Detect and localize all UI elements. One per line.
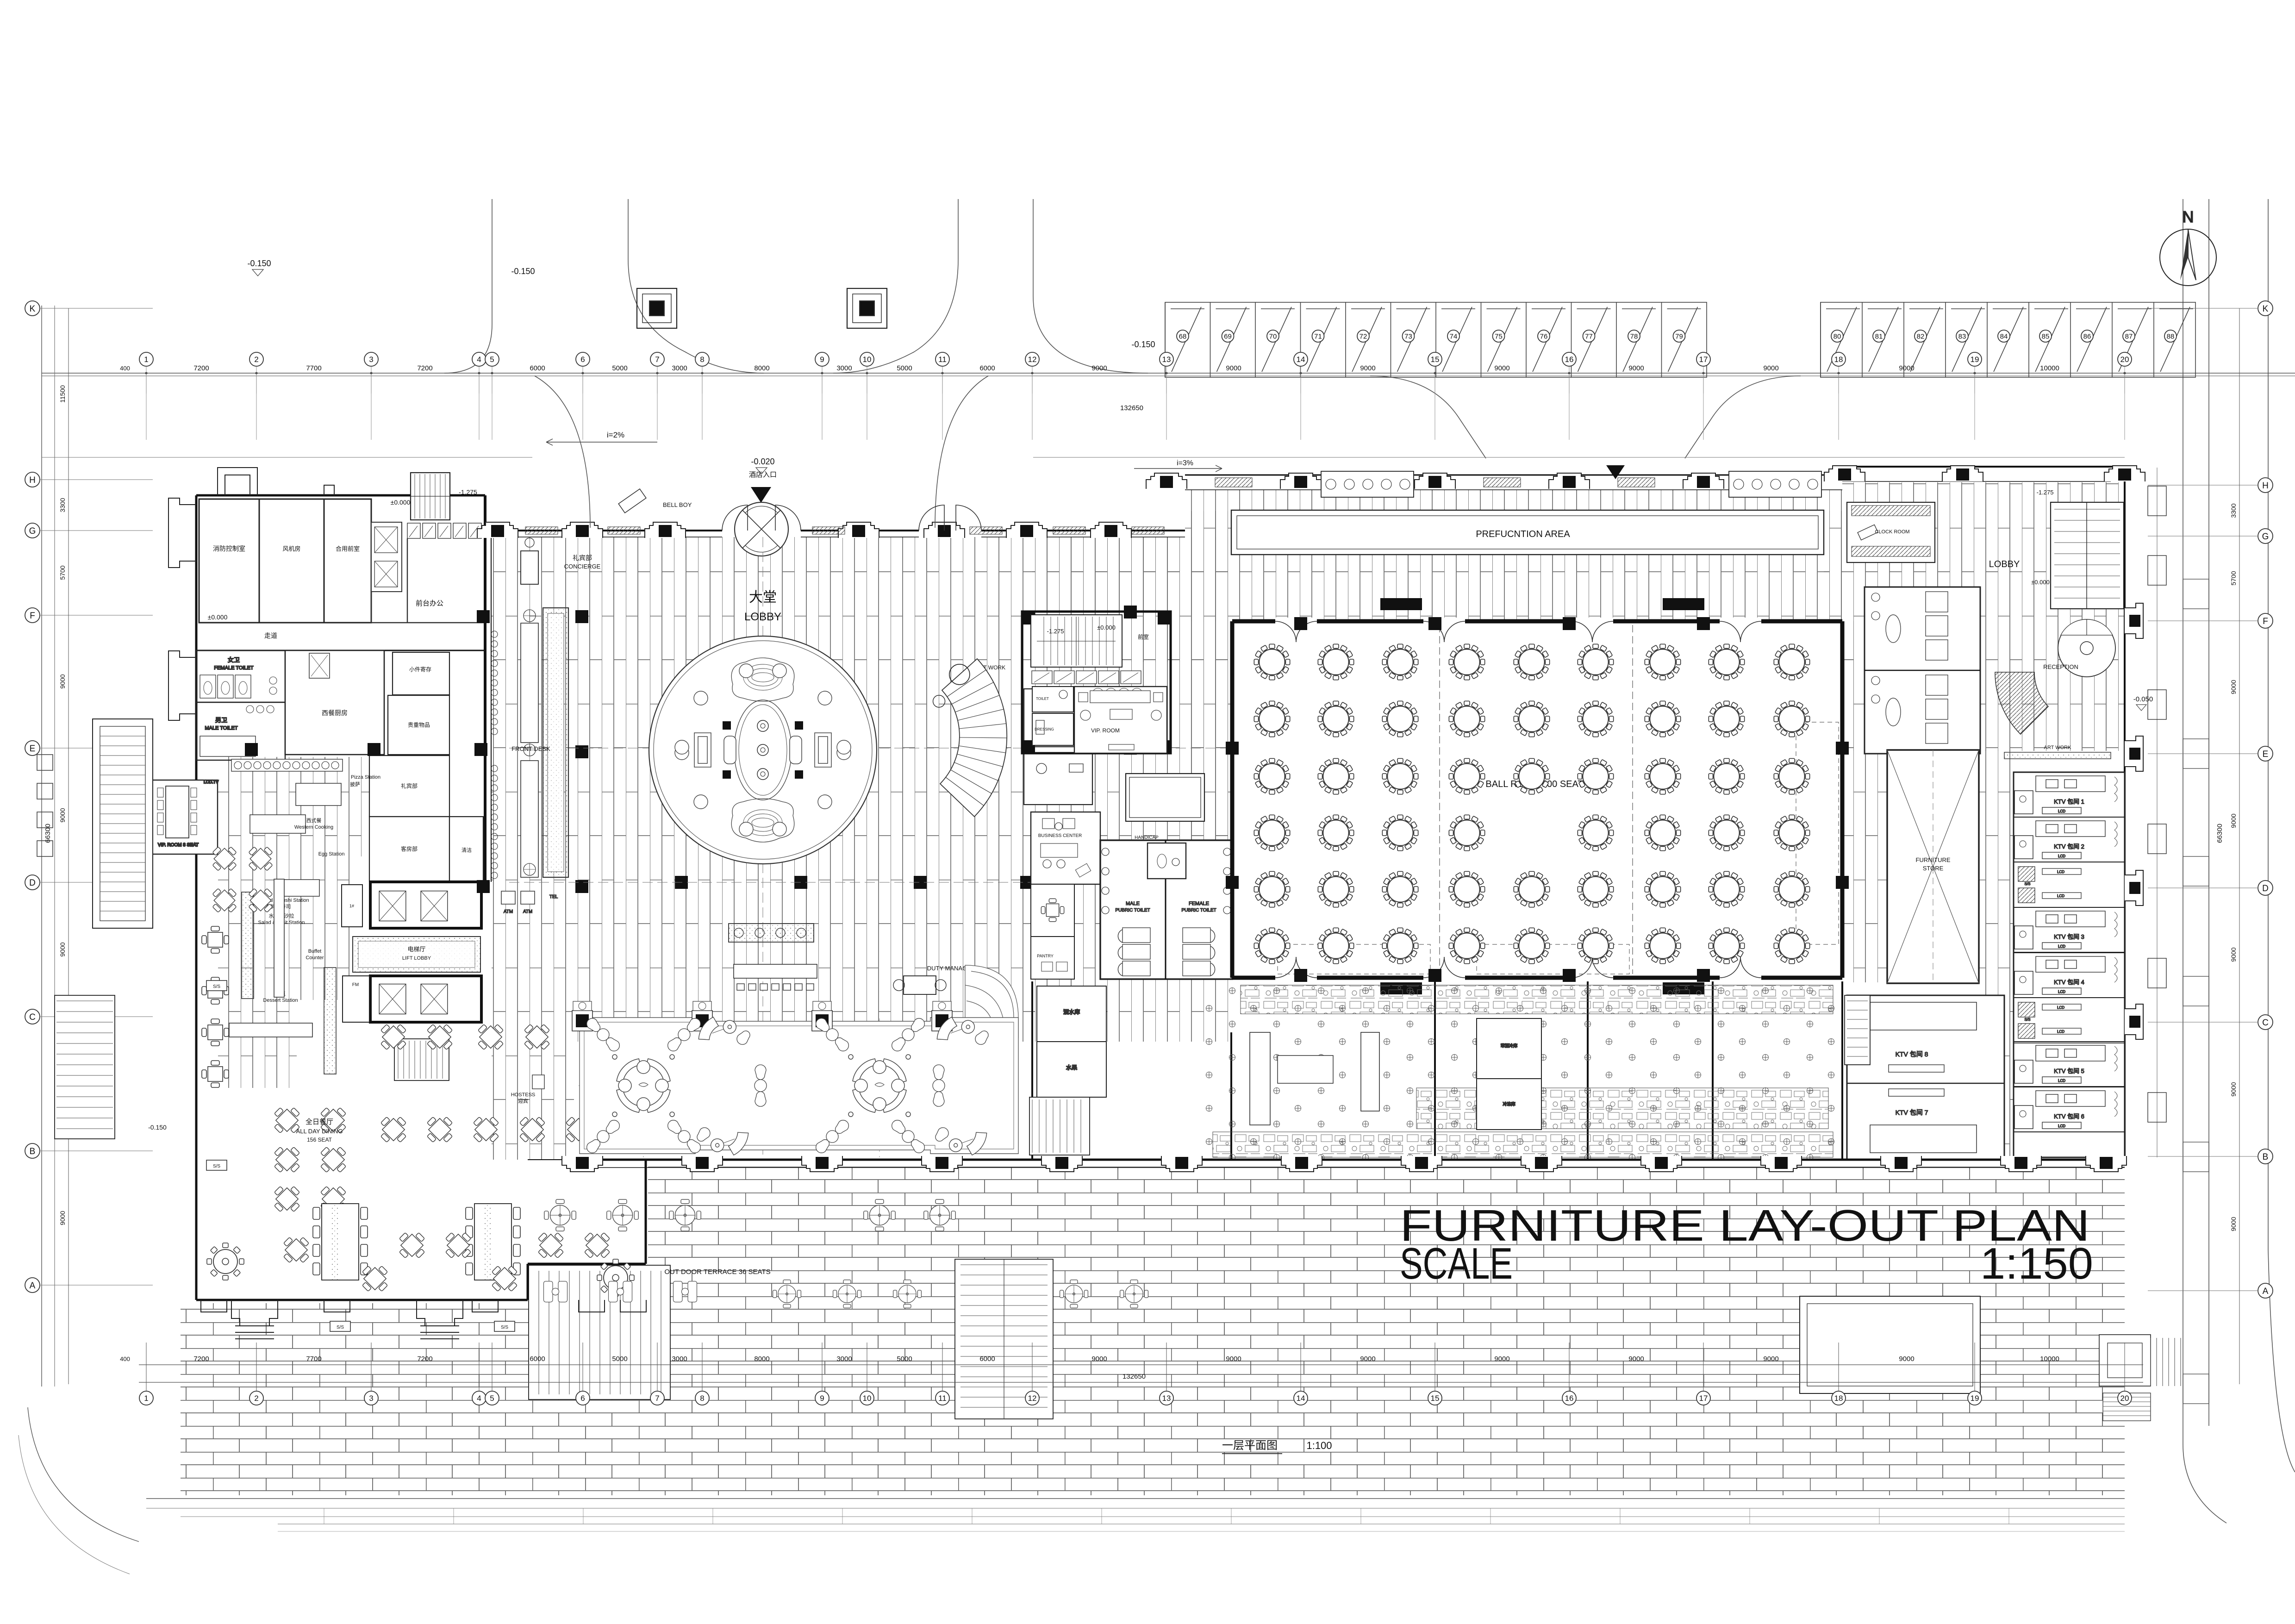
svg-text:74: 74 [1450,332,1458,340]
svg-text:N: N [2183,208,2194,226]
svg-text:7200: 7200 [193,1355,209,1363]
svg-text:2: 2 [254,355,258,364]
svg-text:SCALE: SCALE [1400,1239,1513,1288]
svg-text:6: 6 [580,355,585,364]
svg-text:4: 4 [477,355,481,364]
svg-text:9000: 9000 [2230,680,2237,694]
svg-text:9000: 9000 [2230,1217,2237,1231]
svg-text:9000: 9000 [2230,947,2237,962]
svg-text:LIFT LOBBY: LIFT LOBBY [402,956,431,961]
svg-text:3: 3 [369,355,373,364]
svg-text:5: 5 [490,1394,494,1403]
svg-text:80: 80 [1834,332,1841,340]
svg-text:5000: 5000 [612,364,627,372]
svg-text:S/S: S/S [213,984,220,989]
svg-text:9000: 9000 [59,808,66,822]
svg-text:客房部: 客房部 [401,845,418,852]
svg-text:一层平面图: 一层平面图 [1222,1439,1278,1452]
svg-text:A: A [30,1281,36,1291]
svg-text:7: 7 [655,355,659,364]
svg-text:HANDICAP: HANDICAP [1135,835,1159,840]
svg-text:78: 78 [1630,332,1638,340]
svg-text:5700: 5700 [59,565,66,580]
svg-text:71: 71 [1314,332,1322,340]
svg-text:8: 8 [700,355,704,364]
svg-text:OUT DOOR TERRACE 36 SEATS: OUT DOOR TERRACE 36 SEATS [664,1268,770,1276]
svg-text:LCD: LCD [2058,990,2065,994]
svg-text:3: 3 [369,1394,373,1403]
svg-text:10000: 10000 [2040,1355,2059,1363]
svg-text:TEL: TEL [549,894,558,899]
svg-text:PUBRIC TOILET: PUBRIC TOILET [1181,908,1216,913]
svg-text:C: C [2262,1018,2269,1028]
svg-text:8: 8 [700,1394,704,1403]
svg-text:11: 11 [938,1394,947,1403]
svg-text:9000: 9000 [59,1211,66,1225]
svg-text:400: 400 [120,1355,130,1362]
svg-text:PANTRY: PANTRY [1037,954,1054,958]
svg-text:S/S: S/S [2025,1018,2031,1022]
svg-text:PUBRIC TOILET: PUBRIC TOILET [1115,908,1150,913]
svg-text:Buffet: Buffet [308,949,322,954]
svg-text:9000: 9000 [1899,1355,1914,1363]
svg-text:G: G [29,526,36,536]
svg-text:5000: 5000 [612,1355,627,1363]
svg-text:72: 72 [1360,332,1367,340]
svg-text:LOBBY: LOBBY [744,611,781,623]
svg-text:7200: 7200 [193,364,209,372]
svg-text:i=3%: i=3% [1177,459,1193,467]
svg-text:3300: 3300 [59,498,66,512]
svg-text:1#: 1# [349,904,354,908]
svg-text:70: 70 [1269,332,1277,340]
svg-text:13: 13 [1162,355,1171,364]
svg-text:3000: 3000 [836,364,852,372]
svg-text:17: 17 [1699,1394,1708,1403]
svg-text:KTV 包间 7: KTV 包间 7 [1896,1109,1928,1116]
svg-text:S/S: S/S [501,1325,508,1330]
svg-text:9000: 9000 [1628,1355,1644,1363]
svg-text:9000: 9000 [59,674,66,688]
svg-text:-0.150: -0.150 [148,1124,167,1131]
svg-text:MALE TOILET: MALE TOILET [205,725,237,731]
svg-text:-0.150: -0.150 [511,267,535,276]
svg-text:14: 14 [1297,355,1305,364]
svg-text:12: 12 [1028,1394,1037,1403]
svg-text:-0.050: -0.050 [2133,695,2153,703]
svg-text:迎宾: 迎宾 [518,1098,528,1104]
svg-text:6000: 6000 [979,1355,995,1363]
svg-text:女卫: 女卫 [228,656,240,663]
svg-text:B: B [2263,1152,2269,1162]
svg-text:A: A [2263,1287,2269,1296]
svg-text:西式餐: 西式餐 [306,817,322,824]
svg-text:H: H [29,475,36,485]
svg-text:6000: 6000 [530,1355,545,1363]
svg-text:3000: 3000 [672,364,687,372]
svg-text:-1.275: -1.275 [2037,489,2054,496]
svg-text:Western Cooking: Western Cooking [294,824,333,830]
svg-text:69: 69 [1224,332,1232,340]
svg-text:KTV 包间 1: KTV 包间 1 [2054,798,2084,805]
svg-text:84: 84 [2000,332,2008,340]
svg-text:10: 10 [863,1394,872,1403]
svg-text:酒水库: 酒水库 [1063,1008,1080,1015]
svg-text:9000: 9000 [1763,1355,1778,1363]
svg-text:水果: 水果 [1066,1064,1077,1071]
svg-text:-0.150: -0.150 [247,259,271,268]
svg-text:83: 83 [1958,332,1966,340]
svg-text:PREFUCNTION AREA: PREFUCNTION AREA [1476,529,1570,539]
svg-text:风机房: 风机房 [282,545,300,552]
svg-text:85: 85 [2042,332,2050,340]
svg-text:2: 2 [254,1394,258,1403]
svg-text:HOSTESS: HOSTESS [511,1092,536,1098]
svg-text:CLOCK ROOM: CLOCK ROOM [1875,529,1909,535]
svg-text:KTV 包间 5: KTV 包间 5 [2054,1068,2084,1074]
svg-text:礼宾部: 礼宾部 [401,782,418,789]
svg-text:小件寄存: 小件寄存 [409,666,431,673]
svg-text:73: 73 [1404,332,1412,340]
svg-text:S/S: S/S [337,1325,344,1330]
svg-text:9000: 9000 [2230,813,2237,828]
svg-text:荤湿冷库: 荤湿冷库 [1501,1043,1517,1048]
svg-text:9000: 9000 [1494,1355,1509,1363]
svg-text:7: 7 [655,1394,659,1403]
svg-text:F: F [2263,617,2268,626]
svg-text:87: 87 [2125,332,2133,340]
svg-text:C: C [29,1012,36,1022]
svg-text:K: K [2263,304,2269,314]
svg-text:贵重物品: 贵重物品 [408,722,430,728]
svg-text:9000: 9000 [2230,1082,2237,1096]
svg-text:西餐厨房: 西餐厨房 [322,709,348,717]
svg-text:79: 79 [1675,332,1683,340]
svg-text:66300: 66300 [44,824,52,843]
svg-text:FM: FM [352,982,359,987]
svg-text:MALE: MALE [1126,901,1140,906]
svg-text:i=2%: i=2% [607,431,624,439]
svg-text:Egg Station: Egg Station [318,851,345,857]
svg-text:7700: 7700 [306,364,321,372]
svg-text:全日餐厅: 全日餐厅 [306,1118,333,1126]
svg-text:76: 76 [1540,332,1548,340]
svg-text:5000: 5000 [897,364,912,372]
svg-text:LCD: LCD [2058,809,2065,813]
svg-text:ALL DAY DINING: ALL DAY DINING [296,1128,343,1135]
svg-text:±0.000: ±0.000 [1097,624,1116,631]
svg-text:9000: 9000 [1360,364,1375,372]
svg-text:75: 75 [1495,332,1503,340]
svg-text:8000: 8000 [754,364,769,372]
svg-text:LCD: LCD [2057,1006,2064,1010]
svg-text:9000: 9000 [1226,1355,1241,1363]
svg-text:6000: 6000 [530,364,545,372]
svg-text:81: 81 [1875,332,1883,340]
svg-text:12: 12 [1028,355,1037,364]
svg-text:KTV 包间 8: KTV 包间 8 [1896,1050,1928,1058]
svg-text:合用前室: 合用前室 [336,545,360,552]
svg-text:4: 4 [477,1394,481,1403]
svg-text:7200: 7200 [417,1355,432,1363]
svg-text:BELL BOY: BELL BOY [663,501,692,508]
svg-text:9000: 9000 [1226,364,1241,372]
svg-text:16: 16 [1565,1394,1574,1403]
svg-text:132650: 132650 [1123,1373,1146,1380]
svg-text:11500: 11500 [59,385,66,403]
svg-text:±0.000: ±0.000 [208,613,228,621]
svg-text:男卫: 男卫 [215,717,227,724]
svg-text:86: 86 [2083,332,2091,340]
svg-text:5700: 5700 [2230,571,2237,585]
svg-text:礼宾部: 礼宾部 [573,554,592,562]
svg-text:电梯厅: 电梯厅 [407,946,425,953]
svg-text:9000: 9000 [59,942,66,956]
svg-text:STORE: STORE [1923,865,1944,872]
svg-text:6000: 6000 [979,364,995,372]
svg-text:LCD: LCD [2058,944,2065,949]
svg-text:8000: 8000 [754,1355,769,1363]
svg-text:82: 82 [1917,332,1925,340]
svg-text:前室: 前室 [1138,633,1149,640]
svg-text:FURNITURE: FURNITURE [1915,856,1950,863]
svg-text:FRONT DESK: FRONT DESK [511,745,550,752]
svg-text:Pizza Station: Pizza Station [351,775,380,780]
svg-text:LCD.TV: LCD.TV [204,780,218,784]
svg-text:LCD: LCD [2058,1124,2065,1128]
svg-text:10000: 10000 [2040,364,2059,372]
svg-text:前台办公: 前台办公 [416,600,443,607]
svg-text:19: 19 [1971,1394,1979,1403]
svg-text:-0.150: -0.150 [1131,340,1155,349]
svg-text:ATM: ATM [504,909,513,914]
svg-text:G: G [2262,532,2269,542]
svg-text:BUSINESS CENTER: BUSINESS CENTER [1038,833,1082,838]
svg-text:6: 6 [580,1394,585,1403]
svg-text:冷冻库: 冷冻库 [1503,1101,1515,1106]
svg-text:披萨: 披萨 [350,781,360,787]
svg-text:TOILET: TOILET [1036,697,1049,701]
svg-text:400: 400 [120,365,130,372]
svg-text:9000: 9000 [1494,364,1509,372]
svg-text:LCD: LCD [2057,894,2064,898]
svg-text:9000: 9000 [1091,1355,1107,1363]
svg-text:15: 15 [1431,1394,1440,1403]
svg-text:LCD: LCD [2058,854,2065,858]
svg-text:Counter: Counter [306,955,324,961]
svg-text:15: 15 [1431,355,1440,364]
svg-text:9000: 9000 [1763,364,1778,372]
svg-text:K: K [30,304,36,314]
svg-text:Dessert Station: Dessert Station [263,998,298,1003]
svg-text:E: E [2263,750,2269,759]
svg-text:KTV 包间 2: KTV 包间 2 [2054,843,2084,850]
svg-text:19: 19 [1971,355,1979,364]
svg-text:3000: 3000 [836,1355,852,1363]
svg-text:-1.275: -1.275 [459,488,477,496]
svg-text:132650: 132650 [1120,404,1143,412]
svg-text:大堂: 大堂 [749,590,777,605]
svg-text:B: B [30,1147,36,1156]
svg-text:RECEPTION: RECEPTION [2043,663,2078,670]
svg-text:1:100: 1:100 [1306,1440,1332,1451]
svg-text:156 SEAT: 156 SEAT [307,1137,332,1143]
svg-text:FEMALE TOILET: FEMALE TOILET [214,665,253,671]
svg-text:S/S: S/S [2025,882,2031,886]
svg-text:清洁: 清洁 [461,847,472,853]
svg-text:13: 13 [1162,1394,1171,1403]
svg-text:18: 18 [1834,355,1843,364]
svg-text:9000: 9000 [1091,364,1107,372]
svg-text:14: 14 [1297,1394,1305,1403]
svg-text:VIP. ROOM 8 SEAT: VIP. ROOM 8 SEAT [158,843,199,848]
svg-text:9000: 9000 [1628,364,1644,372]
svg-text:20: 20 [2120,355,2129,364]
svg-text:-1.275: -1.275 [1047,628,1064,635]
svg-text:11: 11 [938,355,947,364]
svg-text:KTV 包间 6: KTV 包间 6 [2054,1113,2084,1120]
svg-text:F: F [30,611,35,621]
svg-text:9000: 9000 [1899,364,1914,372]
svg-text:±0.000: ±0.000 [2031,579,2050,586]
svg-text:1:150: 1:150 [1980,1239,2093,1288]
svg-text:ATM: ATM [523,909,532,914]
svg-text:1: 1 [144,355,148,364]
svg-text:88: 88 [2167,332,2175,340]
svg-text:3300: 3300 [2230,503,2237,518]
svg-text:17: 17 [1699,355,1708,364]
svg-text:D: D [2262,884,2269,893]
svg-text:68: 68 [1179,332,1187,340]
svg-text:18: 18 [1834,1394,1843,1403]
svg-text:66300: 66300 [2216,824,2224,843]
svg-text:LOBBY: LOBBY [1989,559,2020,569]
svg-text:9: 9 [820,1394,824,1403]
svg-text:消防控制室: 消防控制室 [213,545,245,552]
svg-text:20: 20 [2120,1394,2129,1403]
svg-text:D: D [29,878,36,888]
svg-text:LCD: LCD [2058,1079,2065,1083]
svg-text:5000: 5000 [897,1355,912,1363]
svg-text:KTV 包间 3: KTV 包间 3 [2054,933,2084,940]
svg-text:LCD: LCD [2057,1030,2064,1034]
svg-text:7700: 7700 [306,1355,321,1363]
svg-text:CONCIERGE: CONCIERGE [564,563,601,570]
svg-text:9: 9 [820,355,824,364]
svg-text:KTV 包间 4: KTV 包间 4 [2054,979,2084,986]
svg-text:1: 1 [144,1394,148,1403]
svg-text:7200: 7200 [417,364,432,372]
svg-text:E: E [30,744,36,754]
svg-text:9000: 9000 [1360,1355,1375,1363]
svg-text:5: 5 [490,355,494,364]
svg-text:LCD: LCD [2057,870,2064,874]
svg-text:H: H [2262,481,2269,491]
svg-text:FEMALE: FEMALE [1189,901,1209,906]
svg-text:10: 10 [863,355,872,364]
svg-text:-0.020: -0.020 [751,457,774,466]
svg-text:VIP. ROOM: VIP. ROOM [1091,727,1120,734]
svg-text:±0.000: ±0.000 [391,499,411,506]
svg-text:3000: 3000 [672,1355,687,1363]
svg-text:ART WORK: ART WORK [2044,745,2072,750]
svg-text:S/S: S/S [213,1164,220,1169]
svg-text:16: 16 [1565,355,1574,364]
svg-text:走道: 走道 [264,632,277,639]
svg-text:77: 77 [1585,332,1593,340]
